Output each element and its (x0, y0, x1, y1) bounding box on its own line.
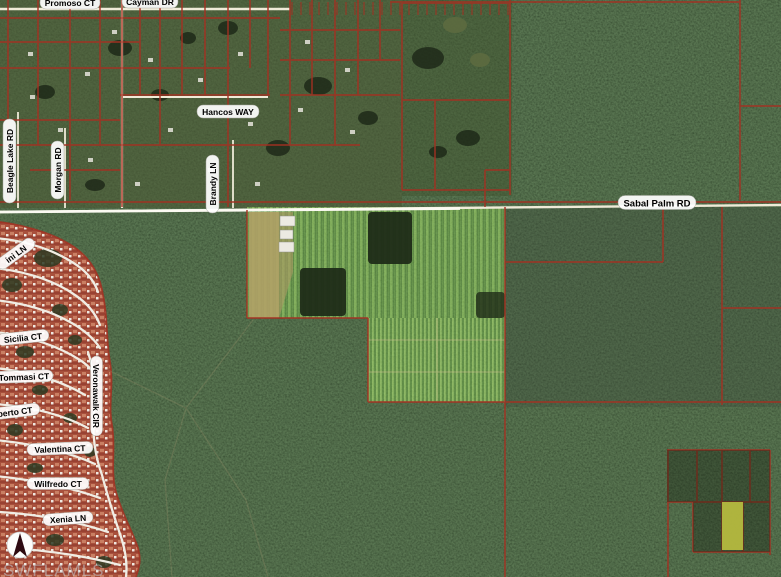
label-valentina-ct: Valentina CT (27, 441, 93, 455)
mls-map-viewport[interactable]: Promoso CT Cayman DR Hancos WAY Beagle L… (0, 0, 781, 577)
subject-parcel-highlight[interactable] (722, 502, 743, 550)
label-morgan-rd: Morgan RD (51, 141, 64, 199)
watermark: SWFLAMLS (3, 561, 105, 577)
label-brandy-ln: Brandy LN (206, 155, 219, 213)
label-sabal-palm-rd: Sabal Palm RD (618, 196, 696, 210)
svg-text:Brandy LN: Brandy LN (208, 163, 218, 206)
label-promoso-ct: Promoso CT (40, 0, 100, 9)
label-cayman-dr: Cayman DR (122, 0, 178, 8)
svg-text:Promoso CT: Promoso CT (45, 0, 96, 8)
bare-soil-area (249, 212, 279, 318)
svg-text:Hancos WAY: Hancos WAY (202, 107, 254, 117)
svg-text:Tommasi CT: Tommasi CT (0, 371, 50, 383)
label-wilfredo-ct: Wilfredo CT (27, 478, 89, 490)
greenhouse-buildings (279, 216, 295, 252)
svg-text:Sabal Palm RD: Sabal Palm RD (623, 198, 690, 209)
label-tommasi-ct: Tommasi CT (0, 369, 53, 383)
svg-text:Valentina CT: Valentina CT (34, 443, 86, 455)
label-veronawalk-cir: Veronawalk CIR (91, 356, 103, 436)
label-hancos-way: Hancos WAY (197, 105, 259, 118)
compass-icon (7, 532, 33, 558)
svg-text:Morgan RD: Morgan RD (53, 147, 63, 192)
svg-text:Wilfredo CT: Wilfredo CT (34, 479, 82, 489)
svg-text:Cayman DR: Cayman DR (126, 0, 174, 7)
svg-text:Beagle Lake RD: Beagle Lake RD (5, 129, 15, 193)
parcel-map[interactable]: Promoso CT Cayman DR Hancos WAY Beagle L… (0, 0, 781, 577)
svg-text:Veronawalk CIR: Veronawalk CIR (91, 364, 101, 428)
label-beagle-lake-rd: Beagle Lake RD (3, 119, 16, 203)
